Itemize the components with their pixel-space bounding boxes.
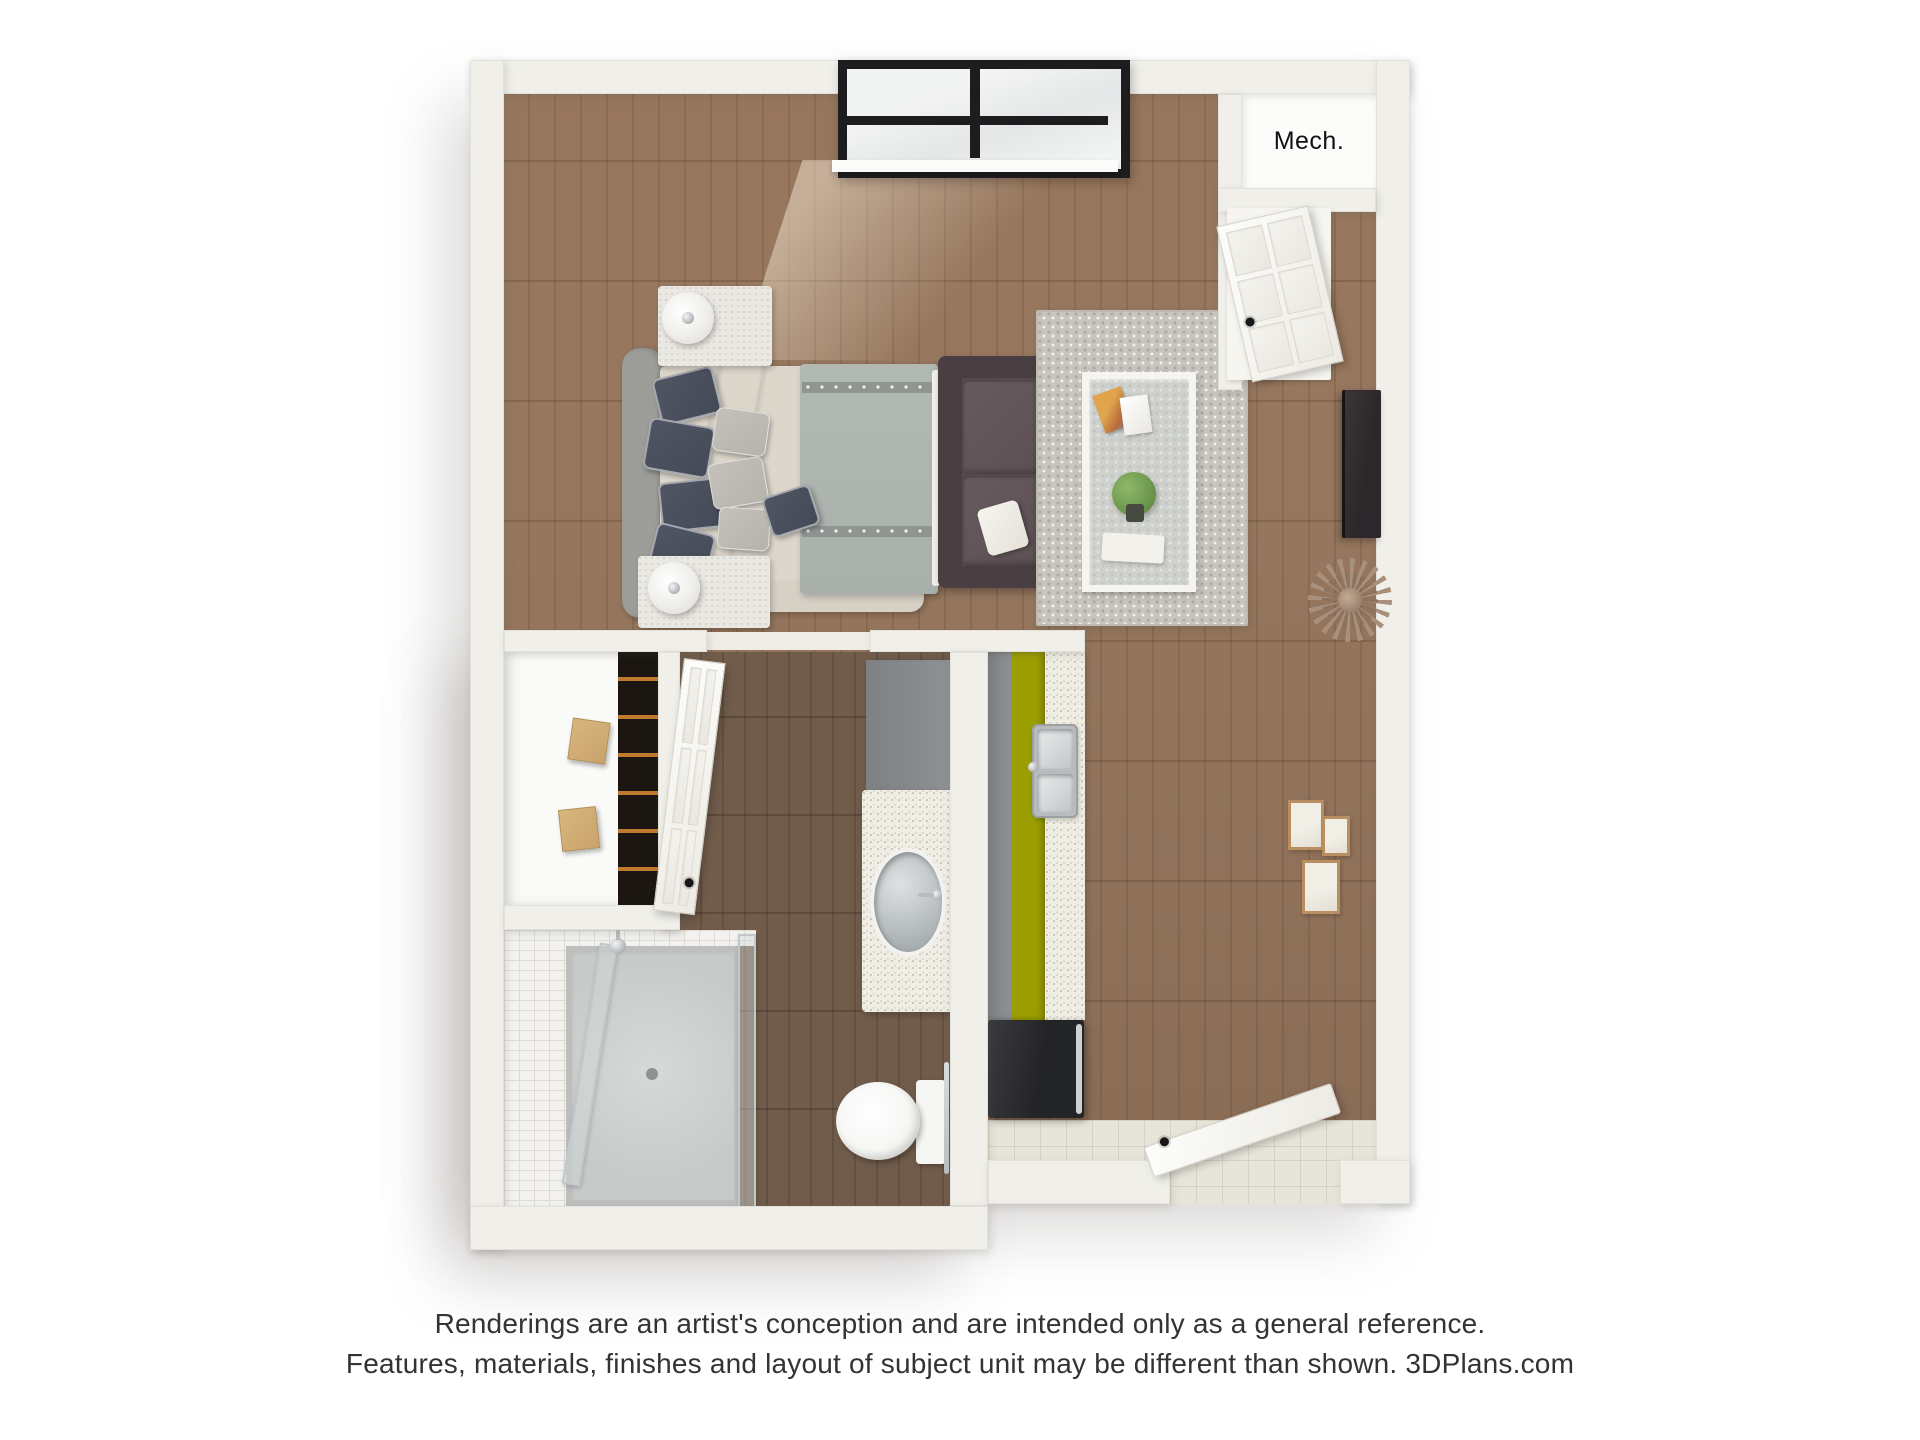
disclaimer-line2: Features, materials, finishes and layout…	[0, 1344, 1920, 1384]
shower-tile-wall	[504, 930, 566, 1206]
duvet-stud-band	[802, 526, 936, 537]
duvet-stud-band	[802, 382, 936, 393]
kitchen-countertop	[1045, 652, 1085, 1020]
wall-bottom-bathroom	[470, 1206, 988, 1250]
sofa-backrest	[938, 356, 962, 588]
shower-arm	[616, 930, 620, 940]
storage-box	[567, 718, 610, 765]
bed-pillow	[711, 406, 771, 457]
lamp-base	[682, 312, 694, 324]
shower-head	[610, 938, 626, 954]
window-mullion-vertical	[970, 62, 980, 158]
door-knob	[684, 878, 694, 888]
wall-bottom-living	[988, 1160, 1170, 1204]
sofa-cushion	[964, 382, 1040, 474]
toilet-tank	[916, 1080, 946, 1164]
door-threshold	[1170, 1160, 1340, 1204]
wall-divider	[870, 630, 1085, 652]
door-knob	[1159, 1136, 1170, 1147]
bed-pillow	[706, 455, 769, 510]
sofa-arm	[938, 356, 1046, 378]
picture-frame	[1322, 816, 1350, 856]
sofa-arm	[938, 566, 1046, 588]
lamp-base	[668, 582, 680, 594]
sink-basin	[1037, 774, 1073, 812]
kitchen-cabinets	[988, 652, 1045, 1020]
picture-frame	[1302, 860, 1340, 914]
bed-pillow	[642, 417, 716, 480]
disclaimer-line1: Renderings are an artist's conception an…	[0, 1304, 1920, 1344]
kitchen-faucet	[1028, 762, 1038, 772]
window-sill	[832, 160, 1118, 172]
refrigerator-handle	[1076, 1024, 1082, 1114]
sunburst-center	[1338, 588, 1362, 612]
toilet-bowl	[836, 1082, 920, 1160]
disclaimer: Renderings are an artist's conception an…	[0, 1304, 1920, 1384]
towel-bar	[944, 1062, 949, 1174]
storage-box	[558, 806, 600, 852]
plant-pot	[1126, 504, 1144, 522]
wall-right	[1376, 60, 1410, 1204]
bed-pillow	[717, 506, 772, 552]
floor-plan: Mech.	[470, 60, 1410, 1250]
magazine	[1119, 394, 1152, 436]
shower-tile-wall	[504, 930, 756, 946]
floor-plan-page: Mech. Renderings are an artist's concept…	[0, 0, 1920, 1440]
closet-shelving	[618, 652, 658, 905]
wall-bottom-living	[1340, 1160, 1410, 1204]
window-mullion-horizontal	[842, 116, 1108, 125]
vanity-faucet-spout	[918, 893, 934, 897]
tv	[1342, 390, 1381, 538]
wall-divider	[504, 630, 707, 652]
vanity-sink	[870, 848, 946, 956]
shower-drain	[646, 1068, 658, 1080]
sink-basin	[1037, 729, 1073, 769]
wall-left	[470, 60, 504, 1250]
picture-frame	[1288, 800, 1324, 850]
mech-label: Mech.	[1274, 127, 1345, 156]
bathroom-doorway-threshold	[707, 632, 870, 650]
shower-glass-panel	[738, 934, 756, 1210]
table-tray	[1101, 532, 1164, 563]
bed-duvet	[800, 364, 938, 594]
mech-room: Mech.	[1242, 94, 1376, 188]
refrigerator	[988, 1020, 1084, 1118]
vanity-cabinet	[866, 660, 950, 790]
wall-bathroom-right	[950, 652, 988, 1206]
